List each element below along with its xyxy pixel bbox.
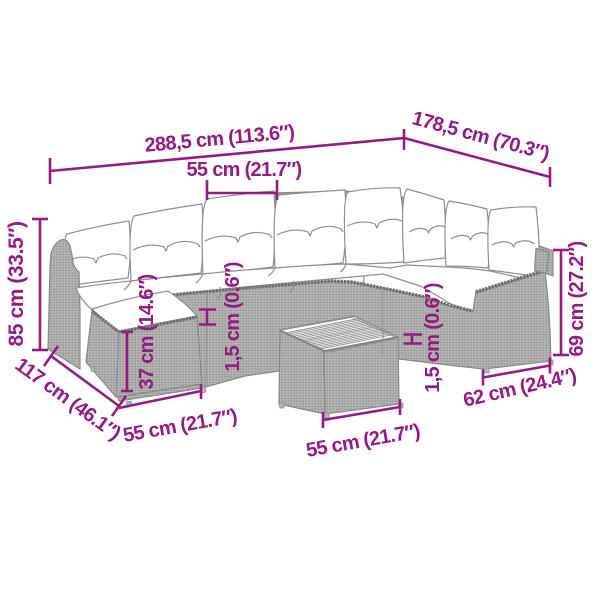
svg-text:1,5 cm (0.6″): 1,5 cm (0.6″) [422, 283, 444, 392]
svg-text:178,5 cm (70.3″): 178,5 cm (70.3″) [410, 107, 552, 165]
svg-text:37 cm (14.6″): 37 cm (14.6″) [136, 274, 158, 389]
svg-text:85 cm (33.5″): 85 cm (33.5″) [5, 221, 28, 346]
svg-text:69 cm (27.2″): 69 cm (27.2″) [566, 241, 588, 356]
svg-text:55 cm (21.7″): 55 cm (21.7″) [121, 405, 238, 447]
svg-text:55 cm (21.7″): 55 cm (21.7″) [187, 159, 302, 181]
svg-text:1,5 cm (0.6″): 1,5 cm (0.6″) [222, 262, 244, 371]
